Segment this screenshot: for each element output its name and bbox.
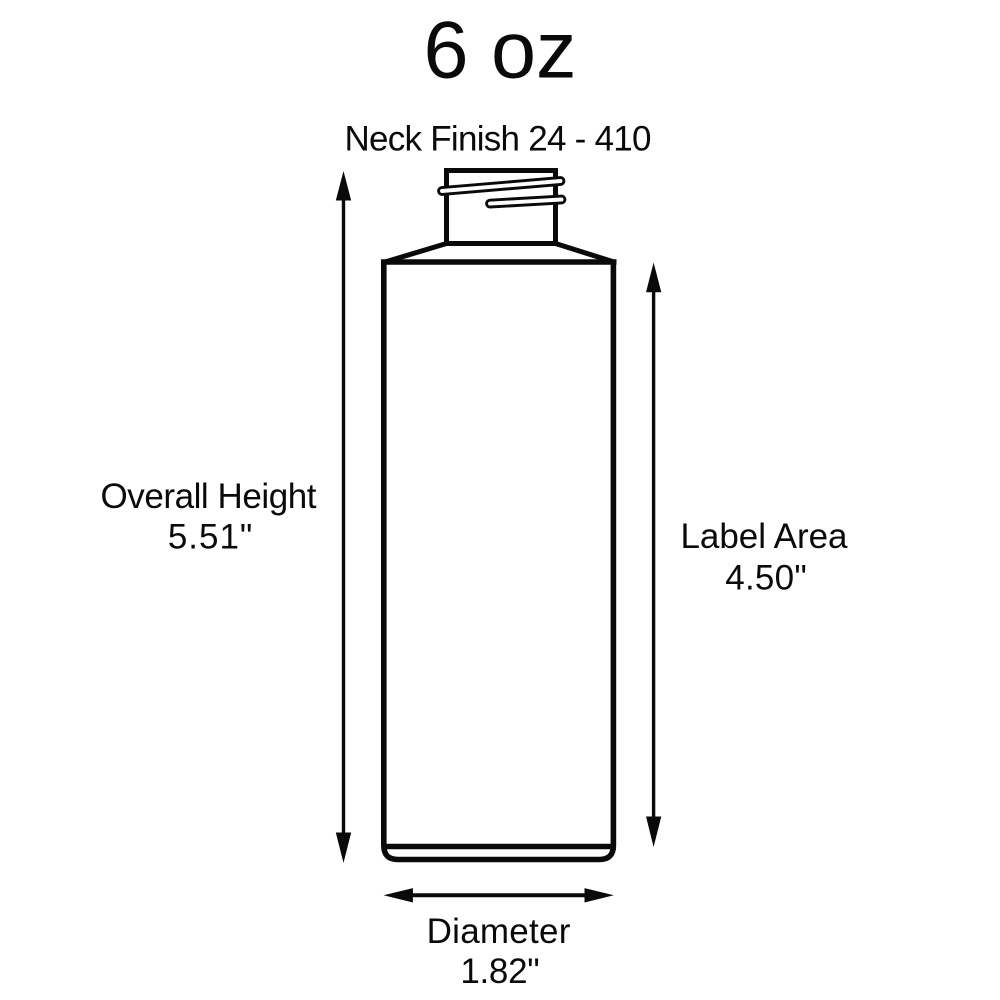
svg-text:Neck Finish 24 - 410: Neck Finish 24 - 410 <box>345 119 652 158</box>
svg-text:5.51": 5.51" <box>168 518 253 557</box>
svg-text:Diameter: Diameter <box>427 912 571 951</box>
svg-text:Label Area: Label Area <box>681 517 849 556</box>
svg-text:4.50": 4.50" <box>725 559 807 598</box>
svg-text:6 oz: 6 oz <box>423 5 576 95</box>
svg-text:Overall Height: Overall Height <box>101 477 317 516</box>
svg-text:1.82": 1.82" <box>460 952 539 991</box>
